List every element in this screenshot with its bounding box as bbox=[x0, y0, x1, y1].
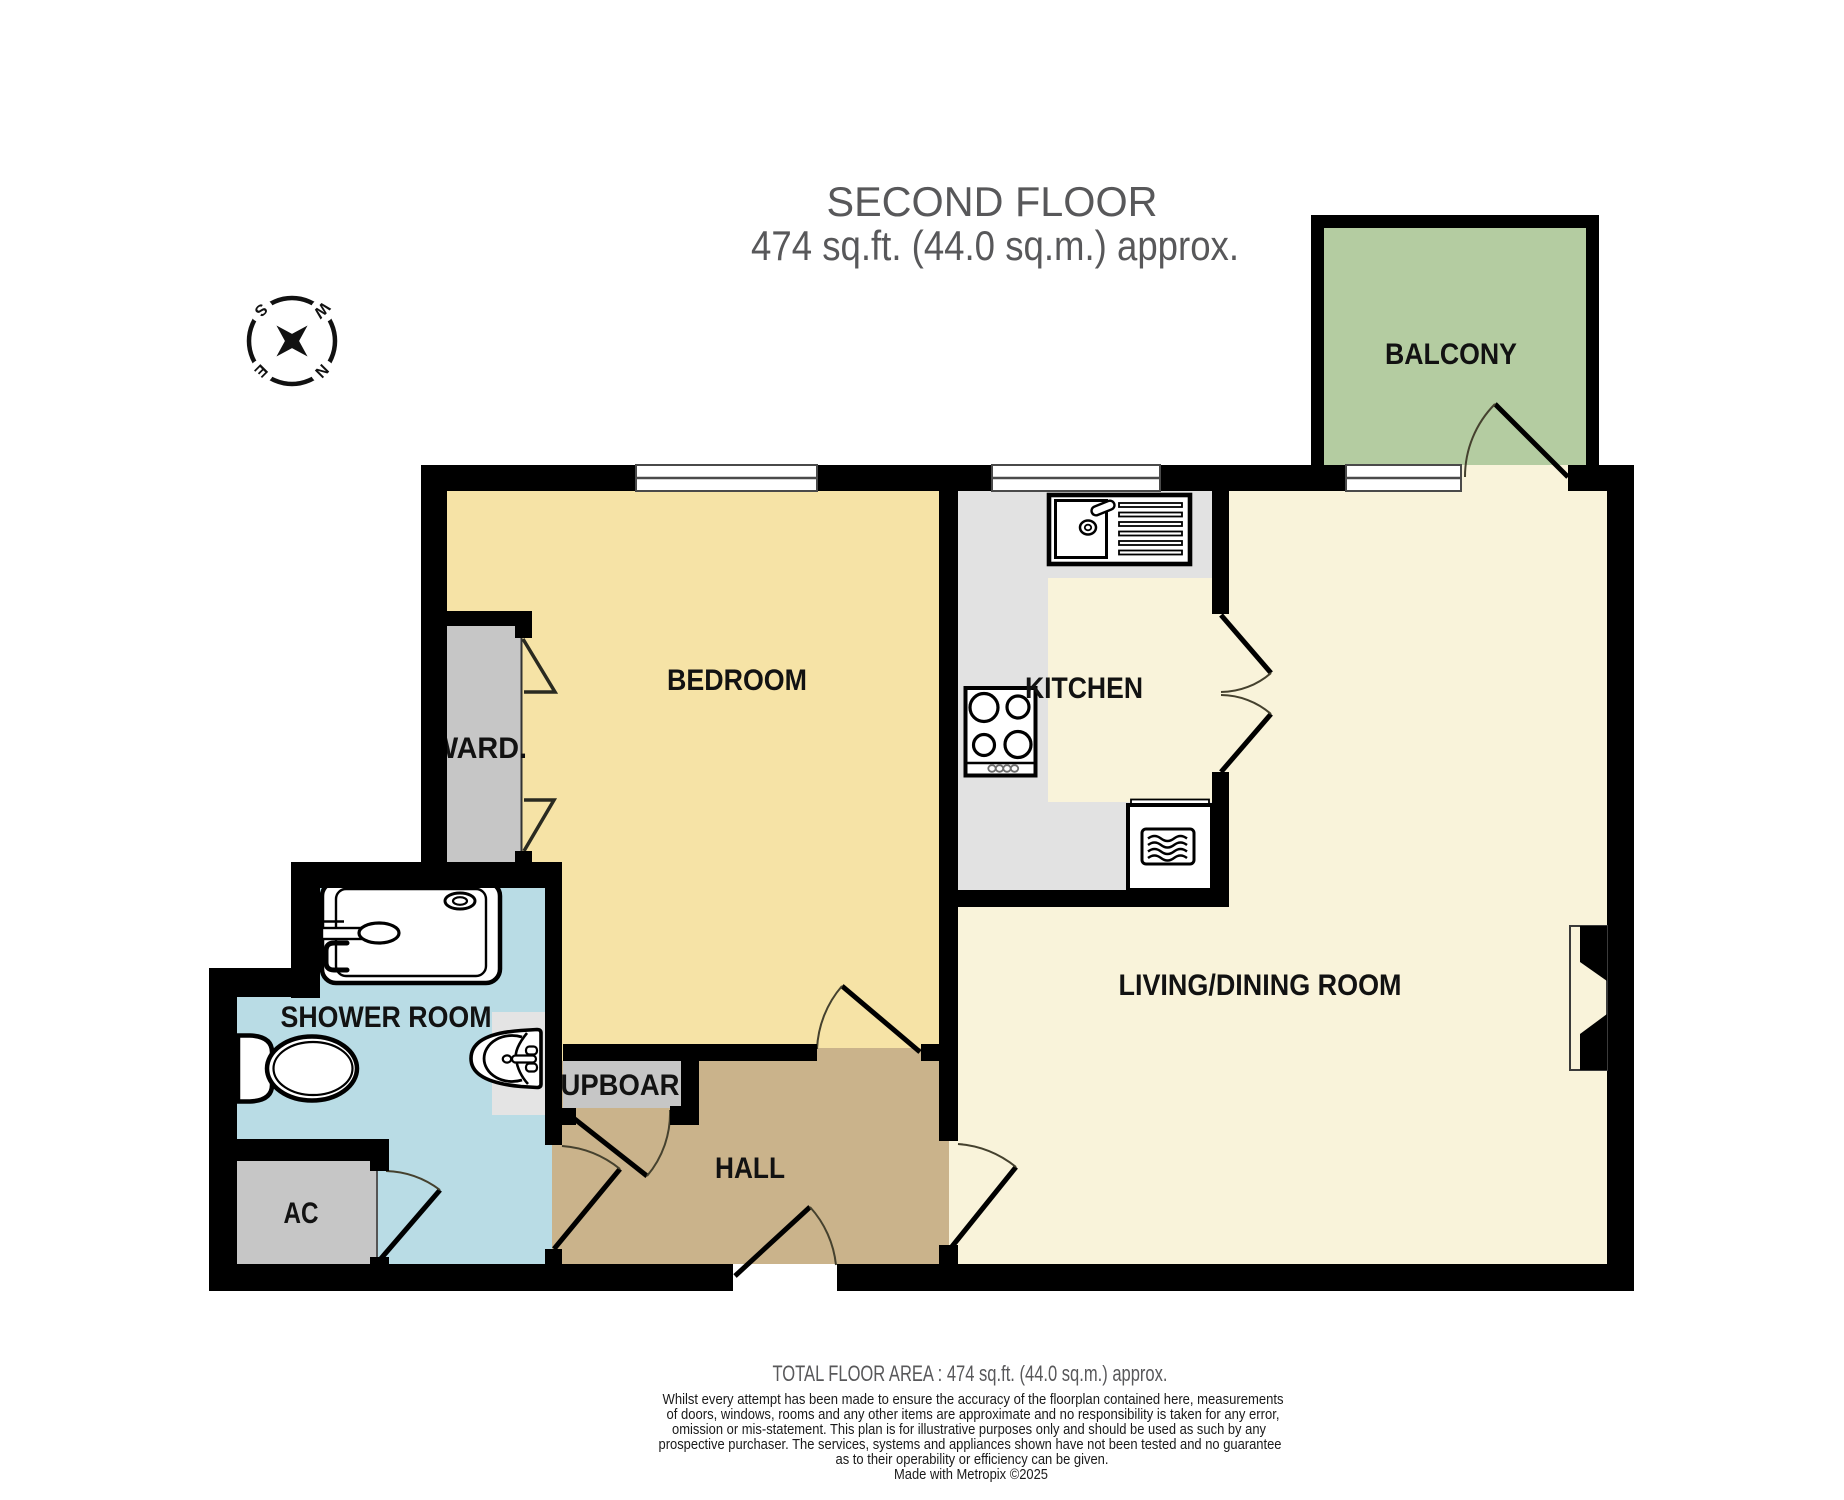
svg-text:LIVING/DINING ROOM: LIVING/DINING ROOM bbox=[1119, 969, 1402, 1002]
svg-text:AC: AC bbox=[284, 1197, 319, 1230]
svg-text:prospective purchaser. The ser: prospective purchaser. The services, sys… bbox=[659, 1437, 1282, 1453]
svg-text:474 sq.ft. (44.0 sq.m.) approx: 474 sq.ft. (44.0 sq.m.) approx. bbox=[751, 222, 1239, 269]
svg-text:Made with Metropix ©2025: Made with Metropix ©2025 bbox=[894, 1467, 1048, 1483]
svg-text:Whilst every attempt has been: Whilst every attempt has been made to en… bbox=[663, 1392, 1284, 1408]
svg-text:BEDROOM: BEDROOM bbox=[667, 664, 807, 697]
svg-text:SECOND FLOOR: SECOND FLOOR bbox=[827, 178, 1158, 225]
svg-text:as to their operability or eff: as to their operability or efficiency ca… bbox=[836, 1452, 1109, 1468]
svg-text:of doors, windows, rooms and a: of doors, windows, rooms and any other i… bbox=[667, 1407, 1280, 1423]
svg-text:omission or mis-statement. Thi: omission or mis-statement. This plan is … bbox=[672, 1422, 1267, 1438]
svg-text:HALL: HALL bbox=[715, 1152, 785, 1185]
svg-text:UPBOAR: UPBOAR bbox=[561, 1069, 680, 1102]
svg-text:KITCHEN: KITCHEN bbox=[1025, 672, 1143, 705]
svg-text:TOTAL FLOOR AREA : 474 sq.ft.: TOTAL FLOOR AREA : 474 sq.ft. (44.0 sq.m… bbox=[773, 1361, 1168, 1386]
svg-text:BALCONY: BALCONY bbox=[1385, 338, 1517, 371]
svg-text:SHOWER ROOM: SHOWER ROOM bbox=[281, 1001, 492, 1034]
